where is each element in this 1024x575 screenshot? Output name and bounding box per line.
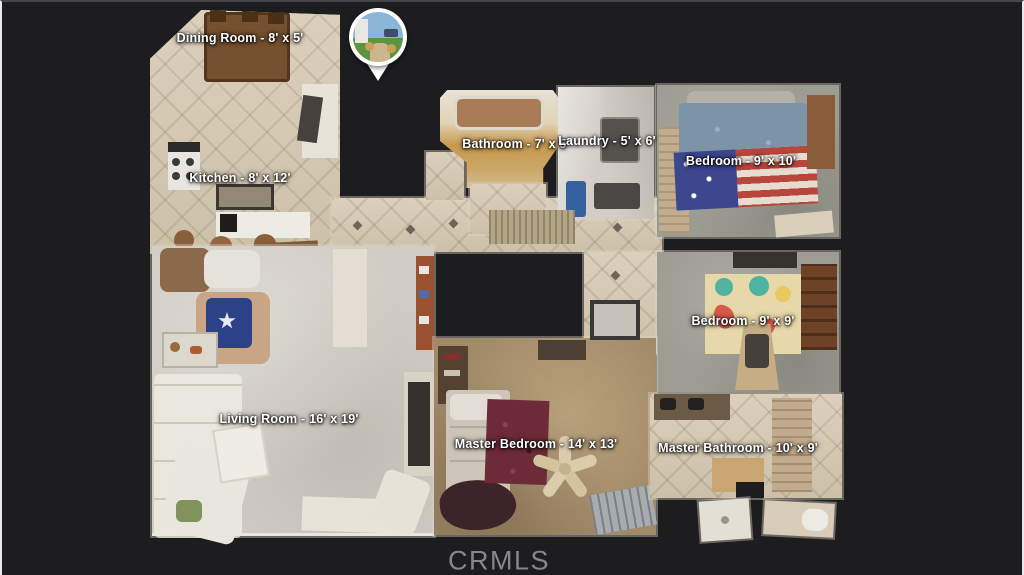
bathtub — [454, 96, 544, 130]
doormat — [489, 210, 575, 244]
green-pillow — [176, 500, 202, 522]
fireplace — [404, 372, 434, 476]
room-laundry[interactable] — [558, 87, 654, 219]
dining-chair — [268, 12, 284, 24]
coffee-table — [212, 422, 270, 483]
nightstand-shelf — [538, 340, 586, 360]
armchair — [160, 248, 210, 292]
kitchen-island — [216, 184, 274, 210]
shower-floor[interactable] — [699, 498, 752, 541]
dining-chair — [210, 10, 226, 22]
nightstand — [807, 95, 835, 169]
label-master-bedroom: Master Bedroom - 14' x 13' — [455, 437, 618, 451]
hallway-patch[interactable] — [426, 152, 464, 200]
room-dining-kitchen[interactable] — [150, 10, 340, 254]
label-laundry: Laundry - 5' x 6' — [558, 134, 656, 148]
dining-chair — [242, 10, 258, 22]
top-shelf — [733, 252, 797, 268]
bookshelf — [416, 256, 434, 350]
room-living[interactable] — [152, 246, 434, 536]
side-chair — [204, 250, 260, 288]
label-master-bathroom: Master Bathroom - 10' x 9' — [658, 441, 818, 455]
void-notch — [736, 482, 764, 498]
label-living-room: Living Room - 16' x 19' — [219, 412, 358, 426]
hallway-mirror — [590, 300, 640, 340]
toilet-area[interactable] — [763, 500, 835, 538]
label-bedroom-2: Bedroom - 9' x 9' — [691, 314, 794, 328]
desk — [801, 264, 837, 350]
floorplan-viewer: Dining Room - 8' x 5' Kitchen - 8' x 12'… — [0, 0, 1024, 575]
dryer-unit — [594, 183, 640, 209]
chair-seat — [745, 334, 769, 368]
location-photo-pin[interactable] — [347, 8, 409, 82]
photo-building — [355, 19, 368, 43]
closet-door — [774, 211, 834, 238]
dishwasher — [220, 214, 237, 232]
photo-bush — [387, 44, 396, 53]
label-kitchen: Kitchen - 8' x 12' — [189, 171, 290, 185]
toilet — [801, 508, 828, 531]
side-tray-table — [162, 332, 218, 368]
pin-head — [349, 8, 407, 66]
photo-car — [384, 29, 398, 37]
crmls-watermark: CRMLS — [448, 546, 550, 575]
label-bedroom-1: Bedroom - 9' x 10' — [686, 154, 796, 168]
label-bathroom: Bathroom - 7' x 5' — [462, 137, 569, 151]
shower-drain — [721, 516, 730, 525]
photo-bush — [365, 42, 374, 51]
label-dining-room: Dining Room - 8' x 5' — [177, 31, 304, 45]
pin-photo-thumbnail — [353, 12, 403, 62]
vanity-counter — [654, 394, 730, 420]
runner-rug — [333, 249, 367, 347]
